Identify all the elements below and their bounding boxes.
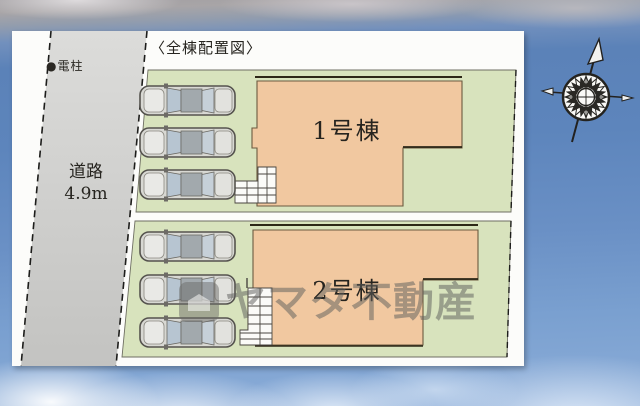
utility-pole-label: ●電柱 [46, 57, 83, 74]
car [140, 84, 235, 118]
plan-title: 〈全棟配置図〉 [150, 37, 262, 58]
car [140, 316, 235, 350]
road-width-label: 道路4.9m [54, 161, 118, 205]
building-2-label: 2号棟 [292, 271, 402, 306]
parked-cars-lot-1 [140, 84, 235, 202]
road-label-line1: 道路 [69, 162, 103, 182]
car [140, 126, 235, 160]
car [140, 168, 235, 202]
screenshot-root: 〈全棟配置図〉 ●電柱 道路4.9m 1号棟 2号棟 ヤマタ不動産 [0, 0, 640, 406]
parked-cars-lot-2 [140, 230, 235, 350]
car [140, 230, 235, 264]
car [140, 273, 235, 307]
building-1-label: 1号棟 [292, 111, 402, 146]
compass-rose-icon [542, 39, 633, 142]
road-label-line2: 4.9m [64, 184, 107, 204]
